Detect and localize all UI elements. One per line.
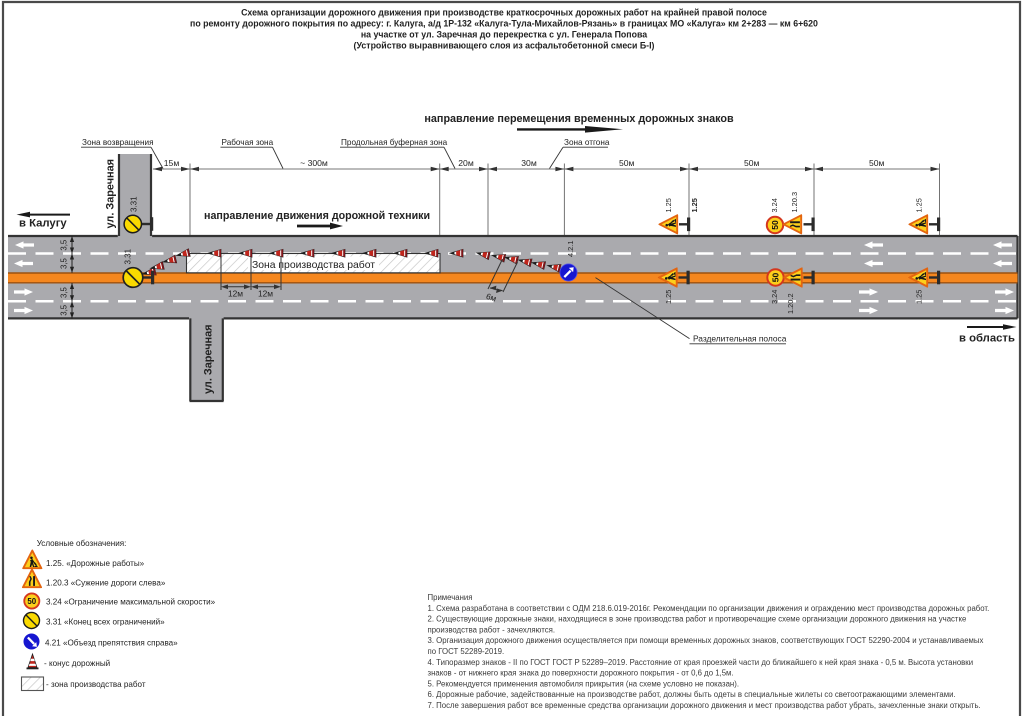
svg-text:3,5: 3,5 [60,258,69,270]
svg-text:в область: в область [959,333,1015,345]
svg-text:3,5: 3,5 [60,239,69,251]
svg-text:1.25: 1.25 [915,290,924,304]
svg-text:12м: 12м [228,289,243,299]
svg-text:4.2.1: 4.2.1 [566,241,575,257]
svg-text:знаков - от нижнего края знака: знаков - от нижнего края знака до поверх… [428,669,734,678]
svg-text:50м: 50м [619,158,635,168]
svg-text:12м: 12м [258,289,273,299]
svg-text:6. Дорожные рабочие, задейство: 6. Дорожные рабочие, задействованные на … [428,690,956,699]
svg-text:15м: 15м [164,158,180,168]
svg-text:1.25. «Дорожные работы»: 1.25. «Дорожные работы» [46,559,145,568]
svg-text:ул. Заречная: ул. Заречная [105,159,117,229]
svg-text:7. После завершения работ все: 7. После завершения работ все временные … [428,701,981,710]
svg-text:- зона производства работ: - зона производства работ [46,680,146,689]
svg-text:3.31 «Конец всех ограничений»: 3.31 «Конец всех ограничений» [46,618,165,627]
svg-text:3.31: 3.31 [124,248,133,264]
svg-text:3. Организация дорожного движе: 3. Организация дорожного движения осущес… [428,636,984,645]
svg-text:~ 300м: ~ 300м [300,158,328,168]
svg-text:Примечания: Примечания [428,593,473,602]
svg-text:2. Существующие дорожные знаки: 2. Существующие дорожные знаки, находящи… [428,615,967,624]
svg-text:Продольная буферная зона: Продольная буферная зона [341,138,448,147]
svg-text:1.25: 1.25 [915,198,924,212]
svg-text:Зона производства работ: Зона производства работ [252,259,375,271]
svg-text:ул. Заречная: ул. Заречная [203,324,215,394]
svg-text:1.20.3 «Сужение дороги слева»: 1.20.3 «Сужение дороги слева» [46,579,166,588]
svg-text:30м: 30м [521,158,537,168]
svg-text:направление движения дорожной: направление движения дорожной техники [204,210,430,222]
svg-text:- конус дорожный: - конус дорожный [44,659,110,668]
svg-text:3.24: 3.24 [770,198,779,212]
svg-text:3.24 «Ограничение максимальной: 3.24 «Ограничение максимальной скорости» [46,598,216,607]
svg-text:по ГОСТ 52289-2019.: по ГОСТ 52289-2019. [428,647,505,656]
svg-text:направление перемещения времен: направление перемещения временных дорожн… [424,113,734,125]
svg-text:Схема организации дорожного дв: Схема организации дорожного движения при… [241,8,767,18]
svg-text:(Устройство выравнивающего сло: (Устройство выравнивающего слоя из асфал… [354,41,655,51]
svg-text:4. Типоразмер знаков - II по Г: 4. Типоразмер знаков - II по ГОСТ ГОСТ Р… [428,658,974,667]
svg-text:Зона отгона: Зона отгона [564,138,610,147]
svg-text:1.20.3: 1.20.3 [790,192,799,213]
svg-text:Разделительная полоса: Разделительная полоса [693,334,787,344]
svg-text:1.25: 1.25 [664,290,673,304]
svg-text:в Калугу: в Калугу [19,218,67,230]
svg-text:Условные обозначения:: Условные обозначения: [37,539,127,548]
svg-text:50м: 50м [869,158,885,168]
svg-text:4.21 «Объезд препятствия справ: 4.21 «Объезд препятствия справа» [45,639,178,648]
svg-text:Зона возвращения: Зона возвращения [82,138,154,147]
svg-text:3.31: 3.31 [130,196,139,212]
svg-text:производства работ - зачехляют: производства работ - зачехляются. [428,625,556,634]
svg-text:1.25: 1.25 [690,198,699,212]
svg-text:3,5: 3,5 [60,287,69,299]
svg-text:Рабочая зона: Рабочая зона [222,138,274,147]
svg-text:50м: 50м [744,158,760,168]
svg-text:1.25: 1.25 [664,198,673,212]
svg-text:3.24: 3.24 [770,290,779,304]
svg-text:20м: 20м [458,158,474,168]
svg-text:3,5: 3,5 [60,304,69,316]
svg-text:1. Схема разработана в соответ: 1. Схема разработана в соответствии с ОД… [428,604,990,613]
svg-text:на участке от ул. Заречная до: на участке от ул. Заречная до перекрестк… [361,30,647,40]
svg-text:по ремонту дорожного покрытия: по ремонту дорожного покрытия по адресу:… [190,19,818,29]
svg-text:5. Рекомендуется применения ав: 5. Рекомендуется применения автомобиля п… [428,679,740,688]
svg-text:1.20.2: 1.20.2 [786,293,795,314]
